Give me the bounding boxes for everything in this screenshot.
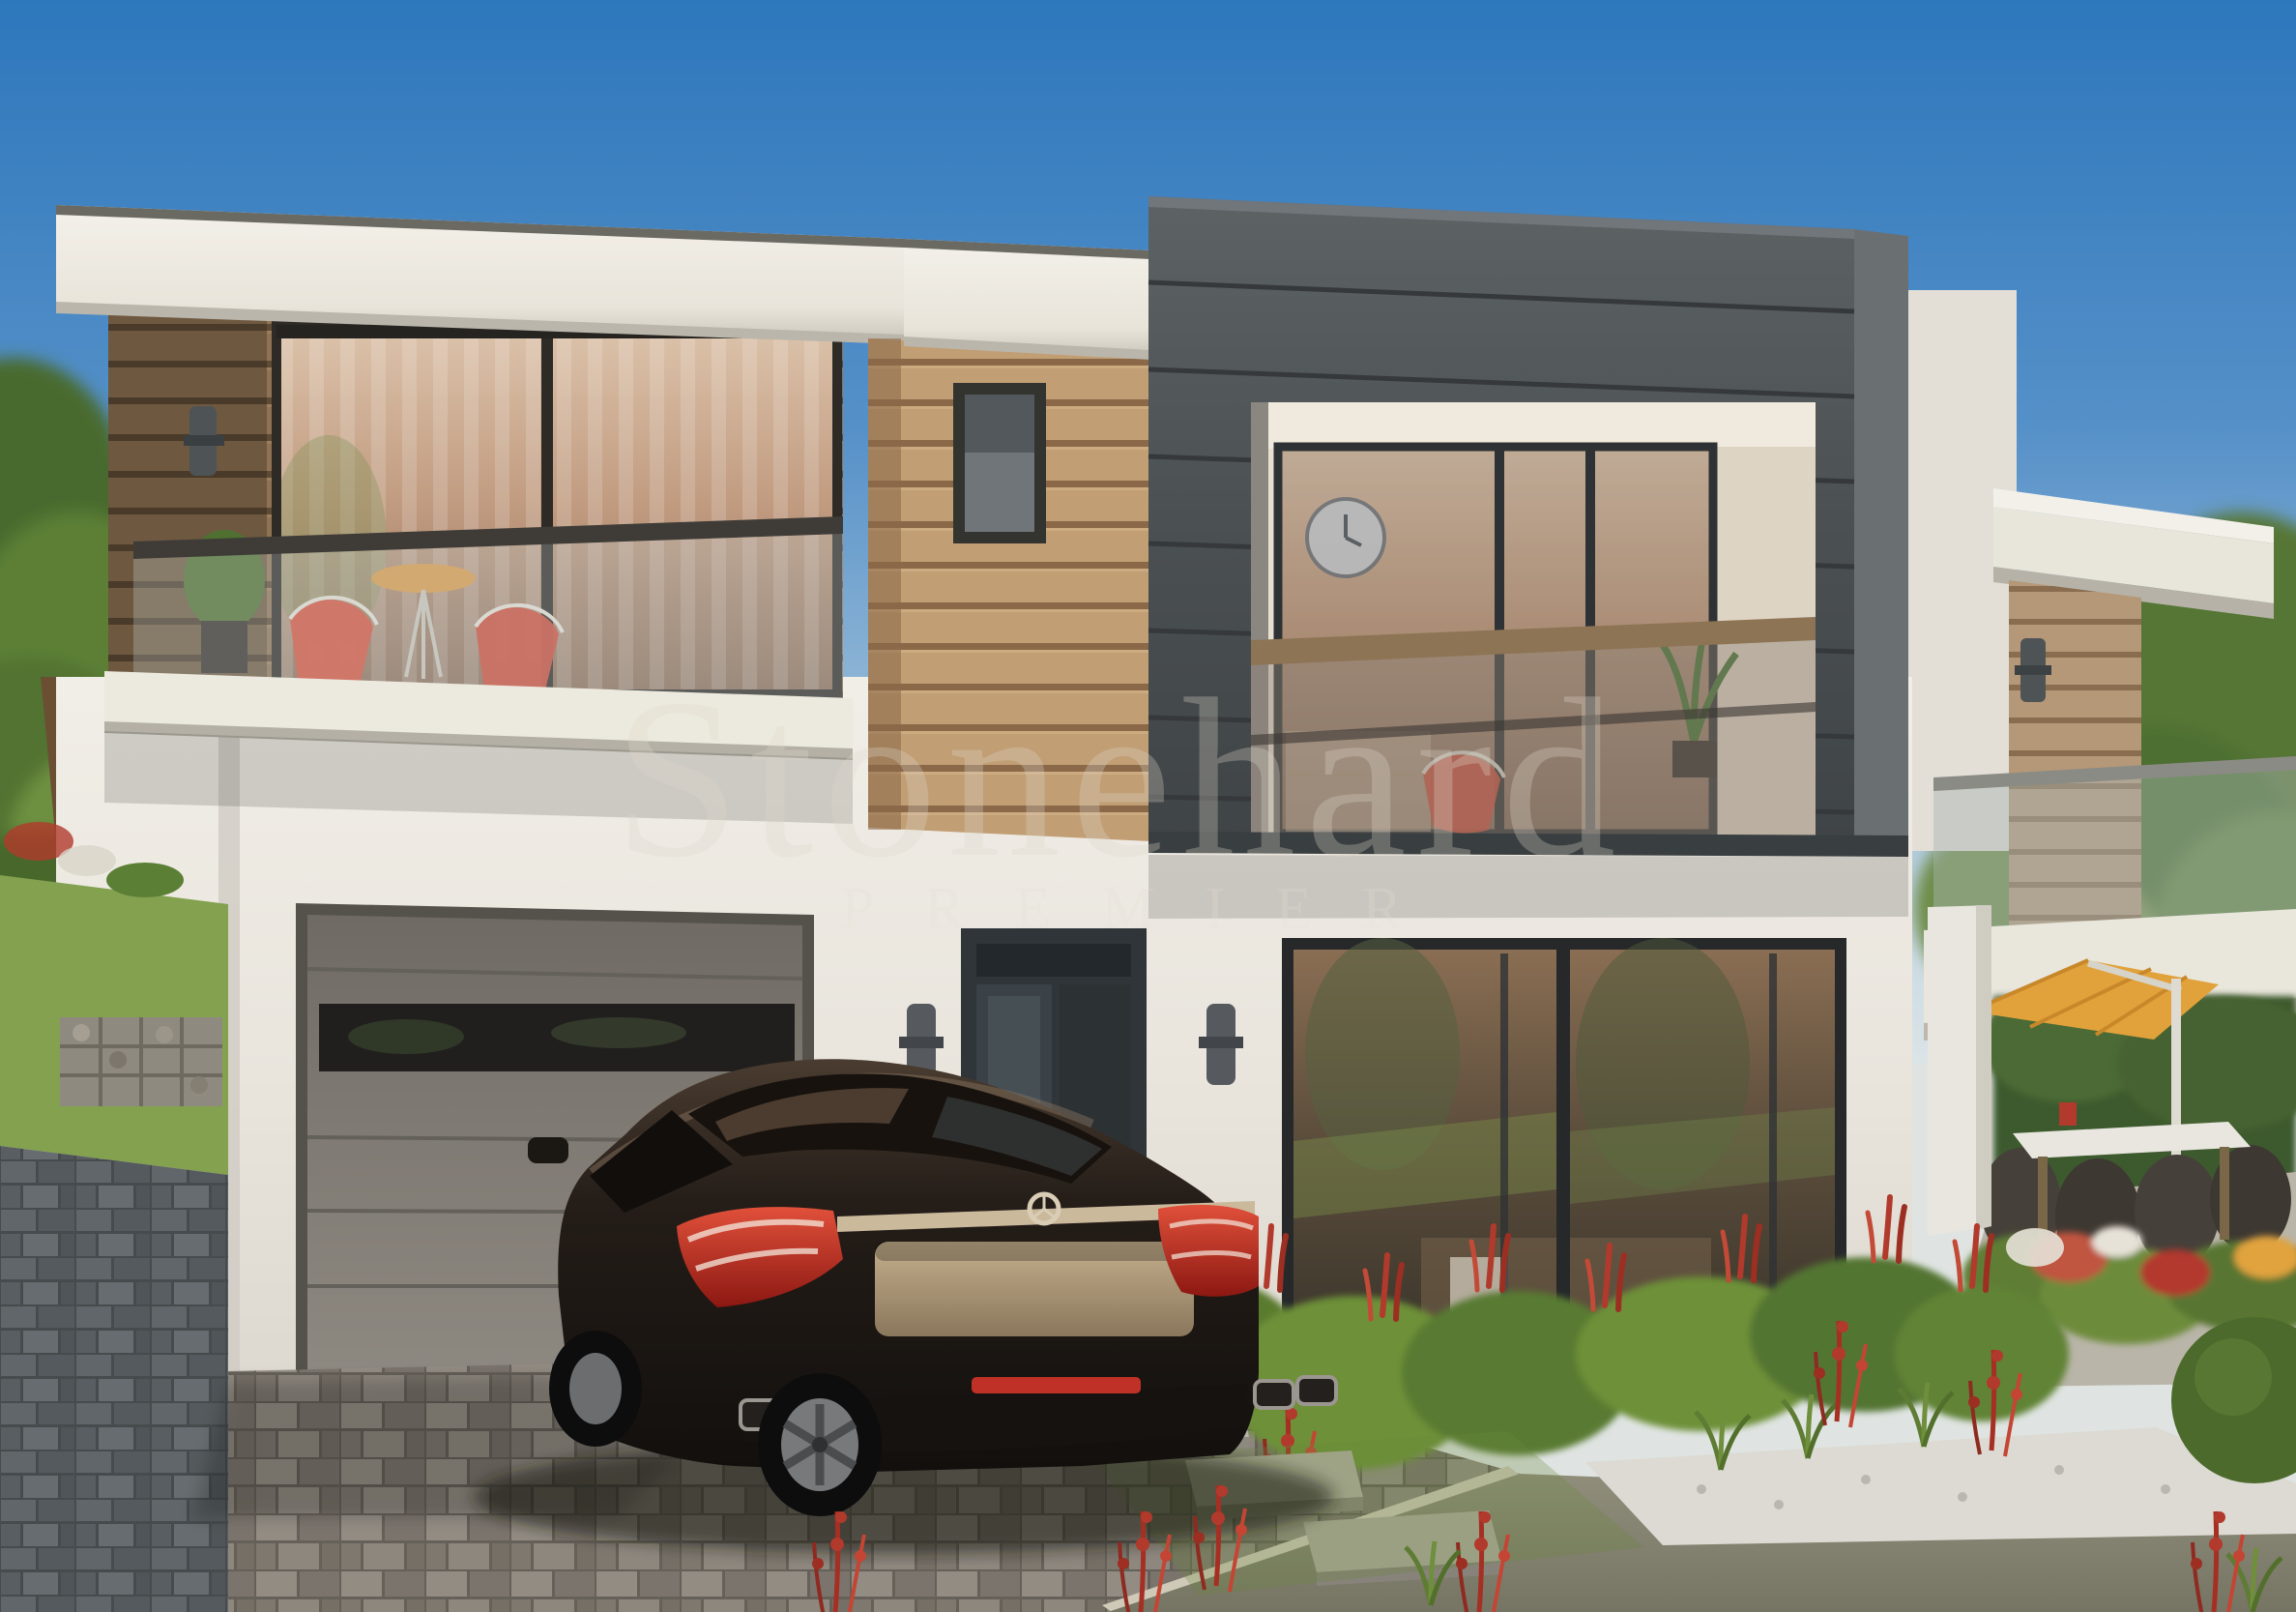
scene-svg: Stonehard PREMIER	[0, 0, 2296, 1612]
bumper-red-reflector	[972, 1377, 1141, 1393]
architectural-render-canvas: Stonehard PREMIER	[0, 0, 2296, 1612]
watermark-brand-text: Stonehard	[614, 653, 1626, 905]
table-decor	[2059, 1102, 2077, 1126]
rear-wheel	[758, 1373, 882, 1516]
side-apron-pavers	[0, 1146, 228, 1612]
entrance-transom	[976, 944, 1131, 977]
watermark-tagline-text: PREMIER	[841, 876, 1453, 942]
gabion-basket	[60, 1017, 222, 1106]
front-wheel	[549, 1331, 642, 1447]
side-mirror	[528, 1137, 568, 1163]
watermark: Stonehard PREMIER	[614, 653, 1626, 942]
charcoal-side	[1854, 229, 1908, 845]
patio-column-shade	[1976, 905, 1991, 1230]
tower-window	[953, 383, 1046, 543]
